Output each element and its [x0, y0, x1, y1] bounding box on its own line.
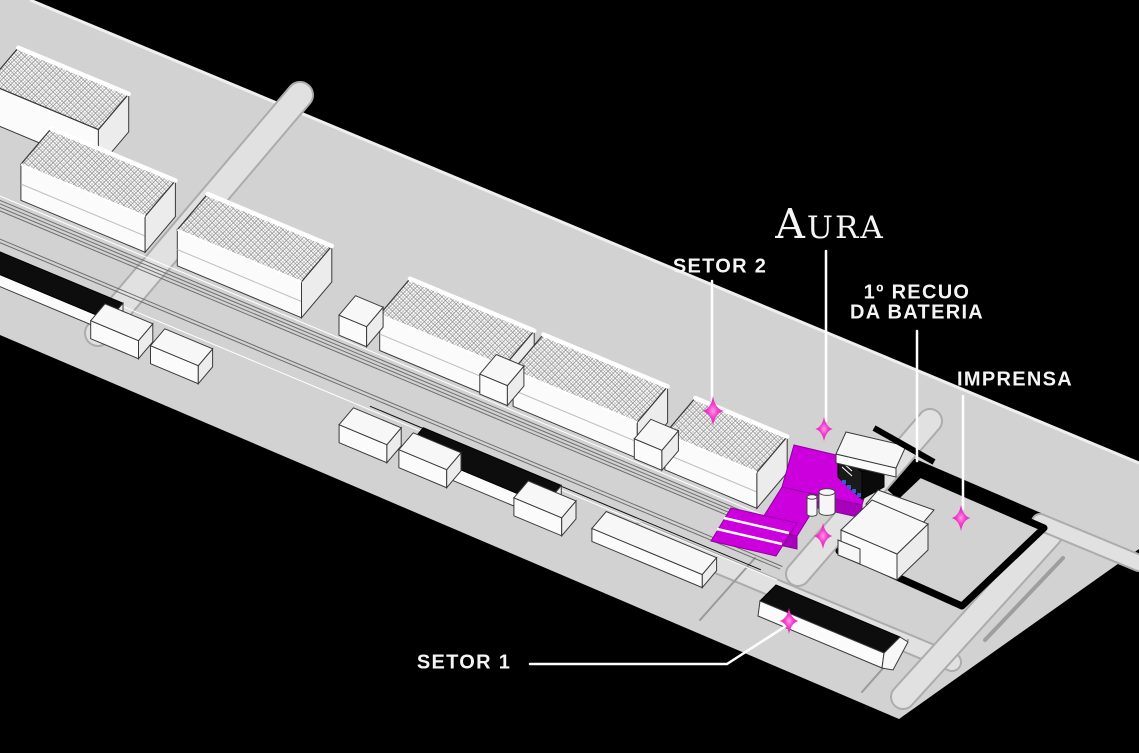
label-imprensa: IMPRENSA	[957, 369, 1073, 392]
aura-logo: AURA	[775, 200, 884, 248]
blue-window-dot	[847, 485, 851, 489]
label-recuo-line2: DA BATERIA	[850, 303, 984, 323]
blue-window-dot	[857, 493, 861, 497]
aura-logo-rest: URA	[807, 210, 885, 246]
venue-map: AURA SETOR 2 1º RECUODA BATERIA IMPRENSA…	[0, 0, 1139, 753]
label-setor-1: SETOR 1	[417, 652, 511, 675]
label-setor-2: SETOR 2	[673, 256, 767, 279]
blue-window-dot	[852, 489, 856, 493]
blue-window-dot	[842, 480, 846, 484]
label-recuo-line1: 1º RECUO	[850, 283, 984, 303]
label-recuo-bateria: 1º RECUODA BATERIA	[850, 283, 984, 324]
aura-logo-initial: A	[775, 200, 807, 248]
